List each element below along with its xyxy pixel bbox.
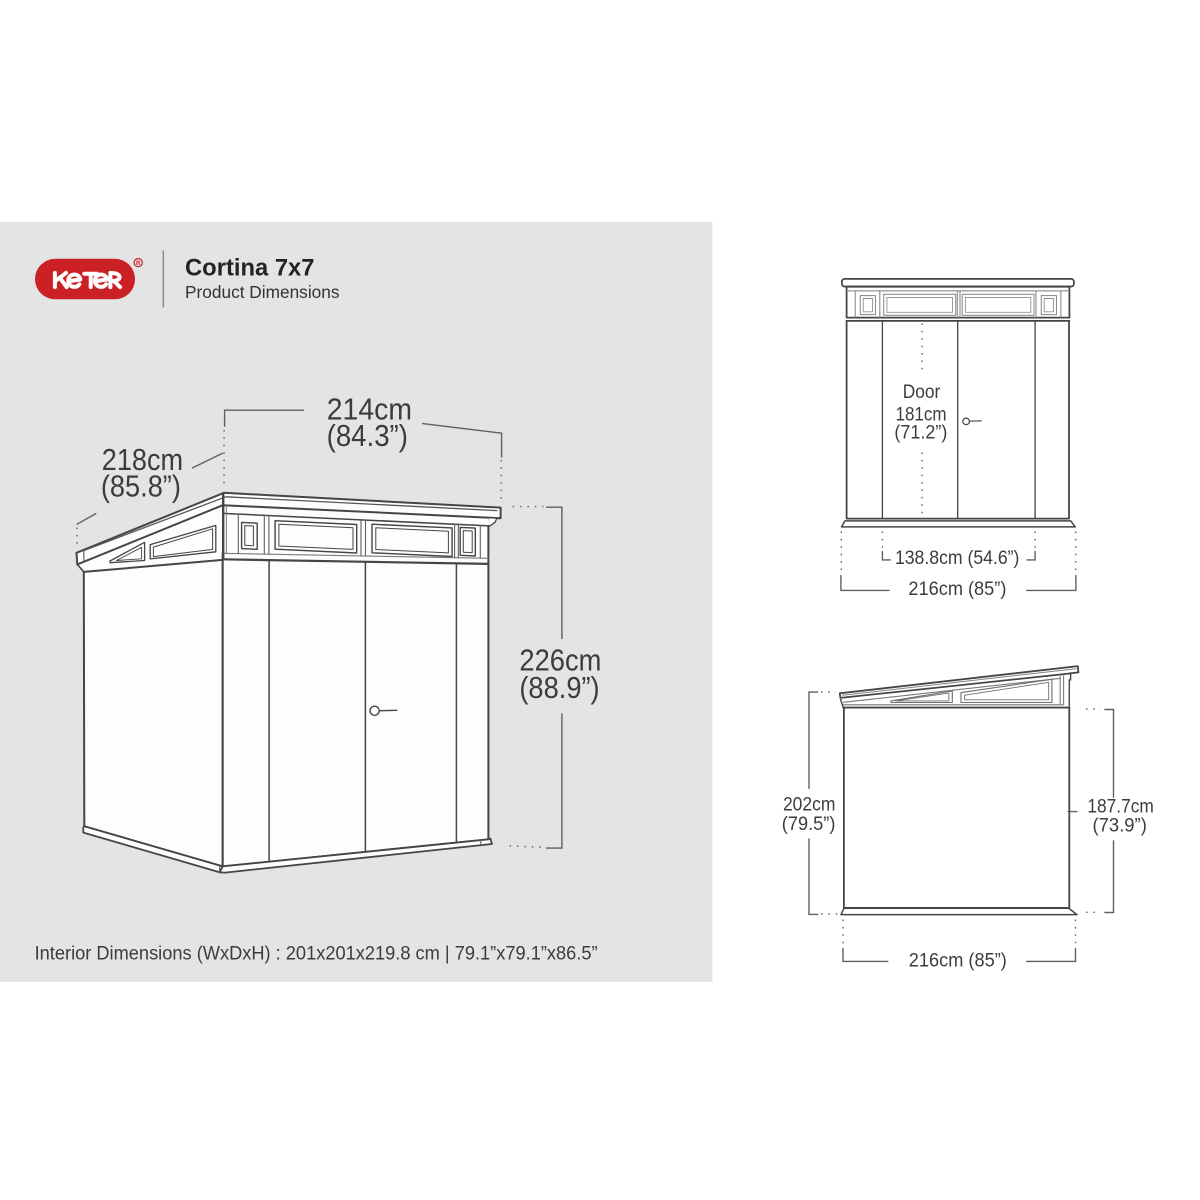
svg-text:(71.2”): (71.2”) xyxy=(894,422,947,443)
svg-text:Door: Door xyxy=(903,382,941,403)
svg-text:R: R xyxy=(136,260,141,267)
svg-text:(84.3”): (84.3”) xyxy=(327,419,408,453)
svg-text:216cm (85”): 216cm (85”) xyxy=(909,950,1007,971)
svg-text:187.7cm: 187.7cm xyxy=(1087,797,1154,818)
svg-text:Product Dimensions: Product Dimensions xyxy=(185,282,340,302)
svg-text:(73.9”): (73.9”) xyxy=(1093,816,1147,837)
svg-text:(79.5”): (79.5”) xyxy=(782,814,836,835)
svg-text:(85.8”): (85.8”) xyxy=(101,469,181,503)
svg-text:216cm (85”): 216cm (85”) xyxy=(908,579,1006,600)
svg-text:Cortina 7x7: Cortina 7x7 xyxy=(185,255,315,282)
svg-text:Interior Dimensions (WxDxH) :: Interior Dimensions (WxDxH) : 201x201x21… xyxy=(35,943,598,965)
svg-text:138.8cm (54.6”): 138.8cm (54.6”) xyxy=(895,548,1020,569)
svg-text:202cm: 202cm xyxy=(783,794,836,815)
svg-text:(88.9”): (88.9”) xyxy=(519,671,599,705)
